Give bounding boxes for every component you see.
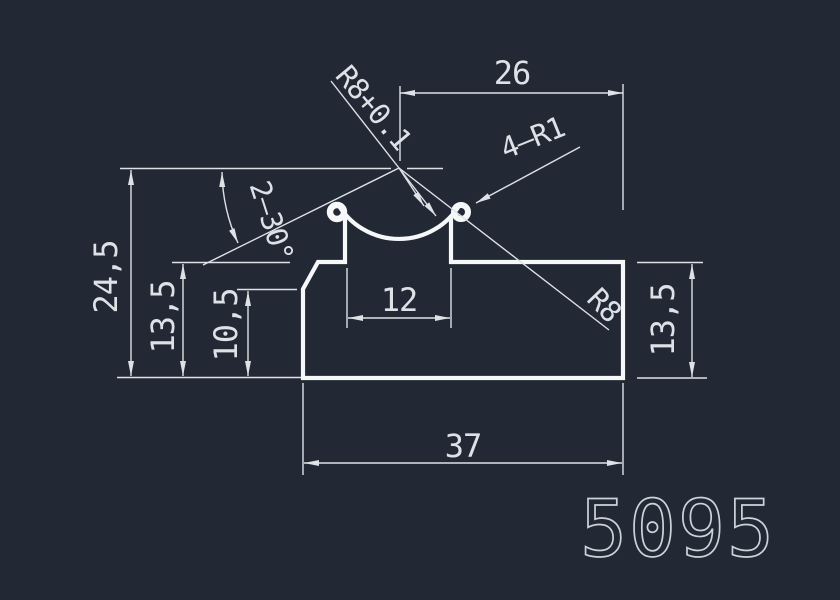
dim-label: 12 [381, 281, 418, 319]
leader-line [399, 168, 609, 330]
leader-groove-radius-tol: R8+0.1 [329, 59, 436, 216]
dim-bottom-width: 37 [303, 383, 623, 475]
dim-label: 13,5 [144, 280, 182, 353]
profile-body [303, 219, 623, 378]
engineering-drawing: 26 24,5 13,5 10,5 12 37 13,5 [0, 0, 840, 600]
dim-label: 10,5 [207, 288, 245, 361]
leader-arrow-line [399, 168, 424, 206]
leader-label: R8 [581, 281, 628, 328]
cad-canvas: 26 24,5 13,5 10,5 12 37 13,5 [0, 0, 840, 600]
part-number: 5095 [580, 485, 776, 575]
leader-corner-radii: 4—R1 [476, 110, 580, 203]
leader-label: R8+0.1 [329, 59, 419, 157]
profile-left-lobe [330, 205, 344, 219]
leader-label: 4—R1 [495, 110, 569, 166]
dim-label: 26 [494, 54, 531, 92]
dim-slot-width: 12 [347, 268, 451, 328]
dim-right-height: 13,5 [637, 263, 707, 379]
angle-arc [222, 172, 238, 243]
dim-chamfer-angle: 2—30° [203, 168, 399, 265]
dim-inner-height: 10,5 [207, 288, 297, 376]
dim-label: 13,5 [644, 283, 682, 356]
angle-edge-line [203, 168, 399, 265]
dim-label: 24,5 [87, 240, 125, 313]
dim-label: 37 [445, 427, 482, 465]
leader-groove-radius: R8 [399, 168, 628, 330]
profile-groove-arc [339, 206, 459, 239]
profile-outline [303, 205, 623, 378]
